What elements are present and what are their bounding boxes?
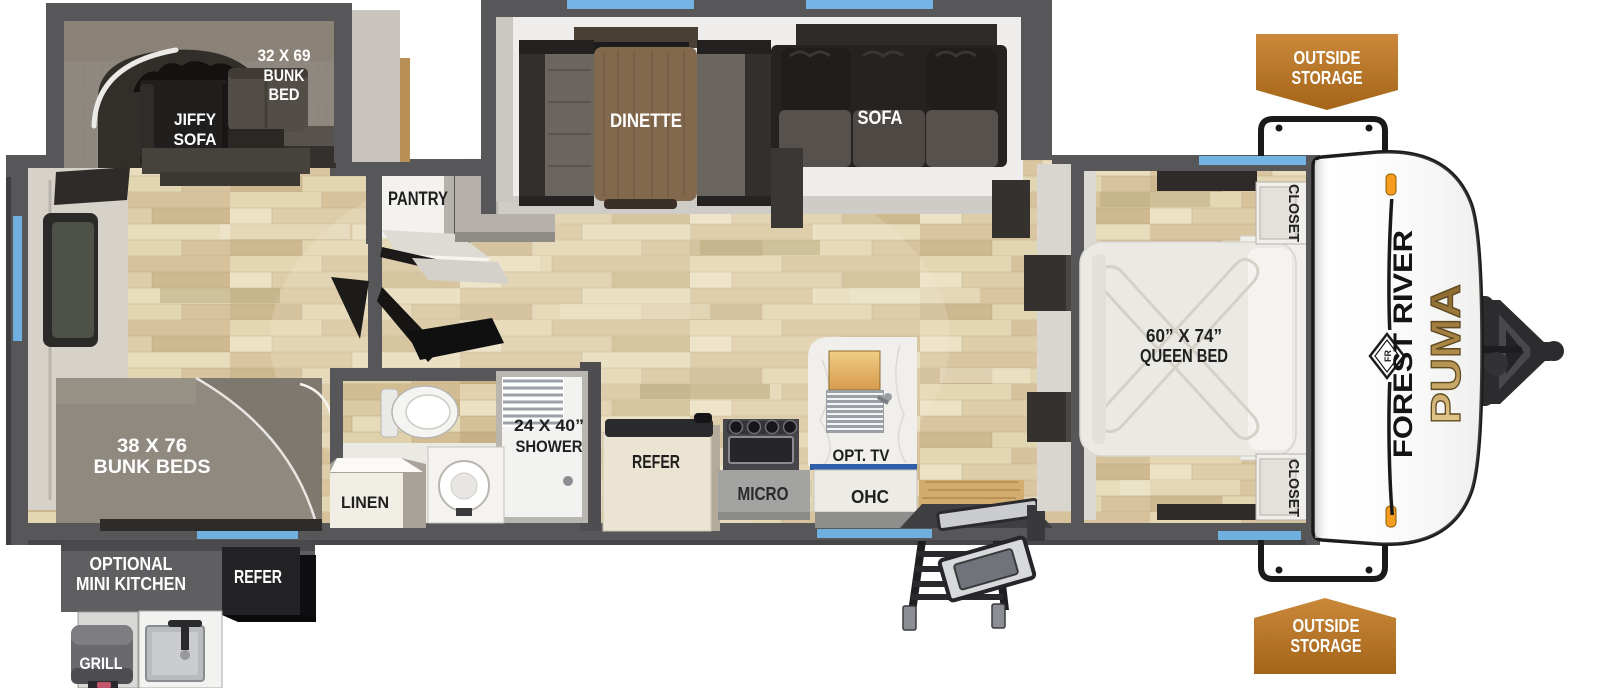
svg-text:24 X 40”: 24 X 40” — [514, 416, 584, 435]
svg-text:60” X 74”: 60” X 74” — [1146, 326, 1222, 346]
svg-text:GRILL: GRILL — [80, 654, 123, 673]
svg-text:STORAGE: STORAGE — [1291, 636, 1362, 656]
svg-text:PANTRY: PANTRY — [388, 189, 448, 210]
svg-text:BED: BED — [269, 85, 300, 104]
svg-text:PUMA: PUMA — [1422, 284, 1469, 424]
svg-text:LINEN: LINEN — [341, 493, 389, 512]
svg-text:OPTIONAL: OPTIONAL — [90, 554, 173, 574]
svg-text:BUNK: BUNK — [264, 66, 306, 85]
svg-text:OUTSIDE: OUTSIDE — [1294, 48, 1361, 68]
svg-text:38 X 76: 38 X 76 — [117, 436, 187, 457]
svg-text:CLOSET: CLOSET — [1285, 184, 1302, 242]
svg-text:FOREST RIVER: FOREST RIVER — [1388, 230, 1418, 458]
svg-text:DINETTE: DINETTE — [610, 111, 682, 132]
svg-text:JIFFY: JIFFY — [174, 110, 217, 129]
svg-text:MICRO: MICRO — [738, 484, 789, 504]
svg-text:CLOSET: CLOSET — [1285, 459, 1302, 517]
svg-text:OUTSIDE: OUTSIDE — [1293, 616, 1360, 636]
svg-text:OPT. TV: OPT. TV — [833, 446, 891, 465]
svg-text:REFER: REFER — [632, 452, 680, 472]
svg-text:SOFA: SOFA — [858, 108, 903, 129]
svg-text:SHOWER: SHOWER — [516, 437, 583, 456]
svg-text:QUEEN BED: QUEEN BED — [1140, 346, 1228, 366]
svg-text:STORAGE: STORAGE — [1292, 68, 1363, 88]
svg-text:SOFA: SOFA — [174, 130, 217, 149]
svg-text:OHC: OHC — [851, 487, 889, 507]
svg-text:REFER: REFER — [234, 567, 282, 587]
svg-text:32 X 69: 32 X 69 — [258, 46, 311, 65]
svg-text:BUNK BEDS: BUNK BEDS — [94, 457, 211, 478]
svg-text:MINI KITCHEN: MINI KITCHEN — [76, 574, 186, 594]
